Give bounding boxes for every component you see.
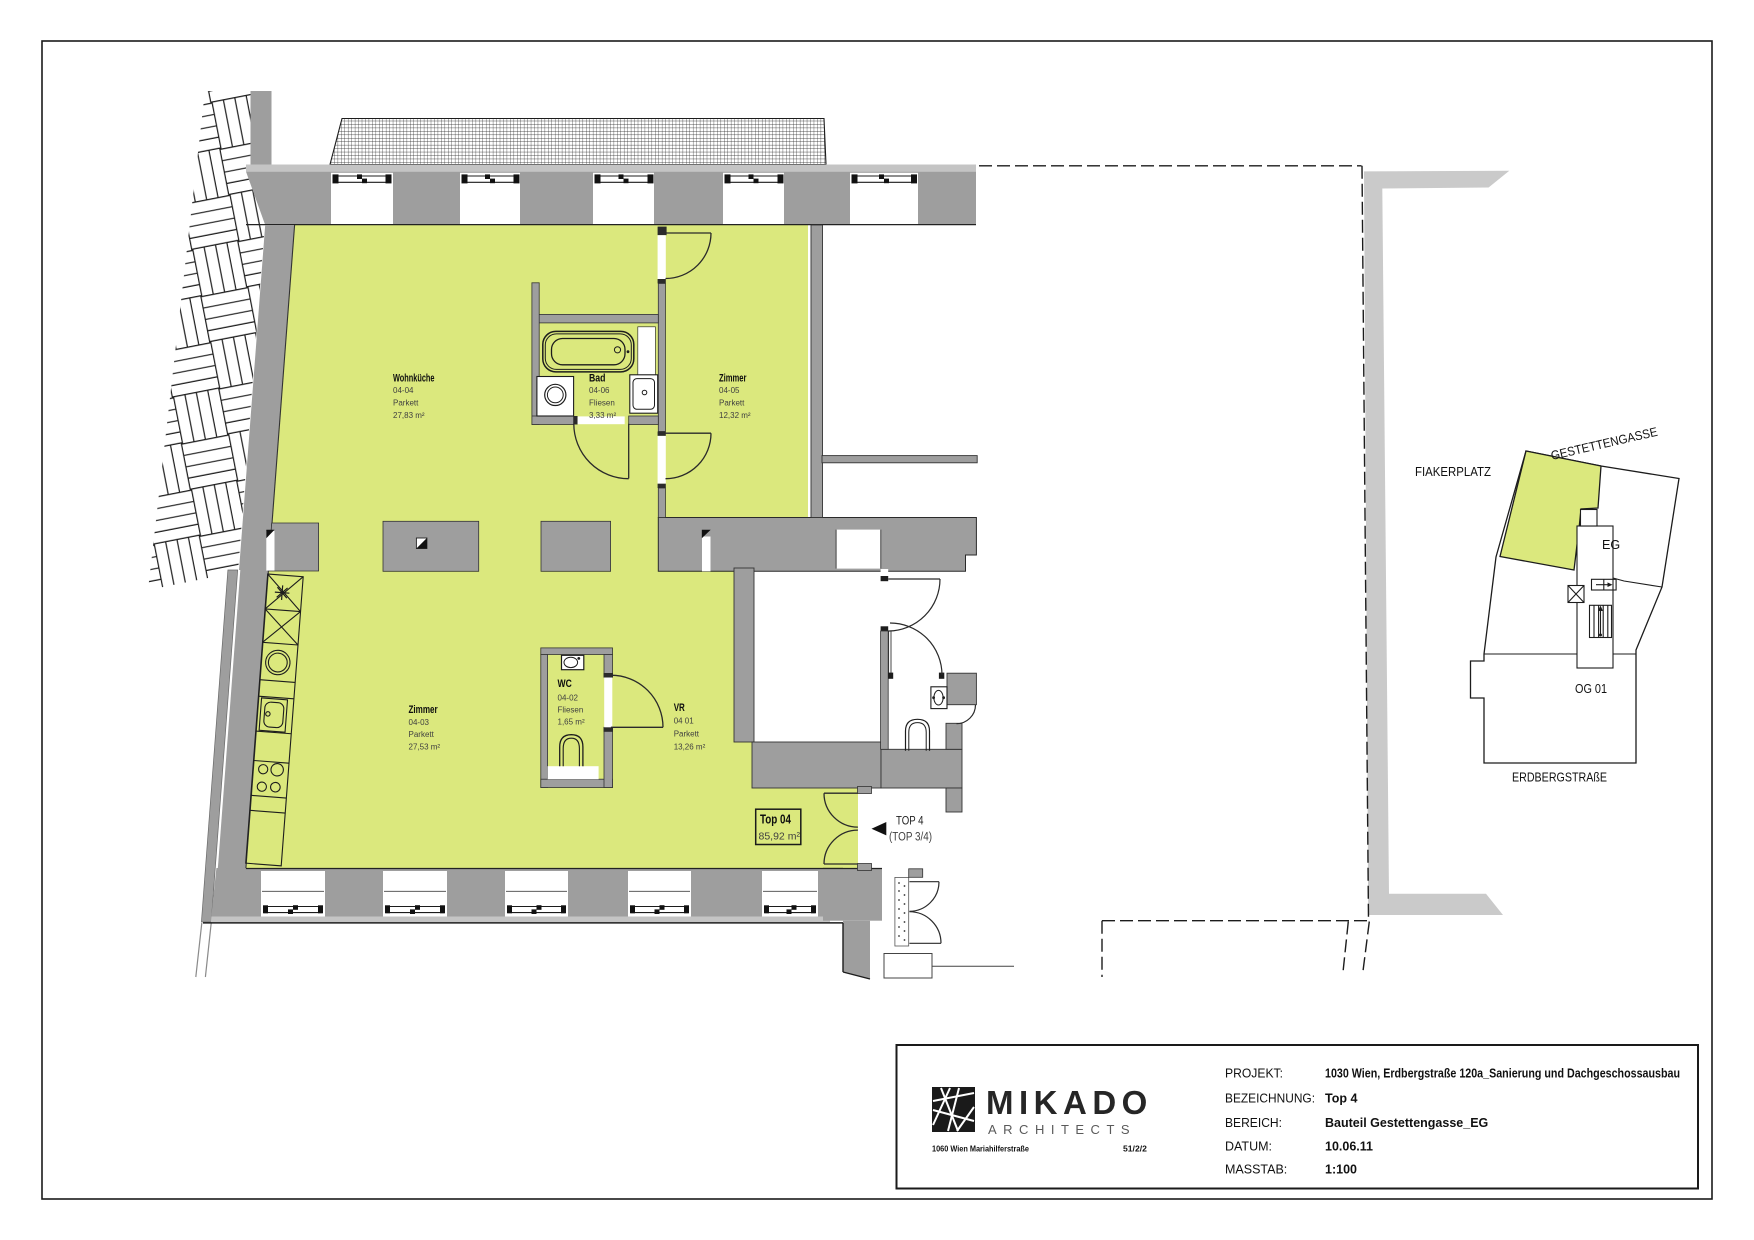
svg-text:04 01: 04 01 [674, 717, 695, 726]
svg-text:Parkett: Parkett [409, 730, 435, 739]
svg-text:04-02: 04-02 [558, 694, 579, 703]
svg-text:04-05: 04-05 [719, 386, 740, 395]
svg-text:12,32 m²: 12,32 m² [719, 411, 751, 420]
svg-text:10.06.11: 10.06.11 [1325, 1140, 1373, 1154]
svg-text:1030 Wien, Erdbergstraße 120a_: 1030 Wien, Erdbergstraße 120a_Sanierung … [1325, 1067, 1680, 1081]
svg-text:Parkett: Parkett [719, 399, 745, 408]
svg-text:EG: EG [1602, 538, 1620, 552]
svg-text:Fliesen: Fliesen [589, 399, 615, 408]
svg-text:Parkett: Parkett [674, 730, 700, 739]
svg-text:04-06: 04-06 [589, 386, 610, 395]
svg-text:Wohnküche: Wohnküche [393, 372, 435, 384]
svg-text:27,53 m²: 27,53 m² [409, 743, 441, 752]
svg-text:Top 04: Top 04 [760, 812, 792, 827]
svg-text:85,92 m²: 85,92 m² [759, 831, 801, 843]
svg-text:27,83 m²: 27,83 m² [393, 411, 425, 420]
svg-text:Bauteil Gestettengasse_EG: Bauteil Gestettengasse_EG [1325, 1116, 1488, 1130]
svg-text:BEREICH:: BEREICH: [1225, 1116, 1282, 1130]
svg-text:PROJEKT:: PROJEKT: [1225, 1067, 1283, 1081]
svg-text:MASSTAB:: MASSTAB: [1225, 1163, 1287, 1177]
svg-text:VR: VR [674, 702, 685, 714]
svg-text:BEZEICHNUNG:: BEZEICHNUNG: [1225, 1092, 1315, 1106]
svg-text:WC: WC [558, 678, 572, 690]
svg-text:MIKADO: MIKADO [986, 1084, 1153, 1121]
svg-text:GESTETTENGASSE: GESTETTENGASSE [1550, 425, 1659, 463]
svg-text:Parkett: Parkett [393, 399, 419, 408]
svg-text:1060 Wien Mariahilferstraße: 1060 Wien Mariahilferstraße [932, 1144, 1029, 1154]
svg-text:04-04: 04-04 [393, 386, 414, 395]
svg-text:DATUM:: DATUM: [1225, 1140, 1272, 1154]
svg-text:OG 01: OG 01 [1575, 682, 1607, 696]
svg-text:TOP 4: TOP 4 [896, 816, 924, 828]
svg-text:3,33 m²: 3,33 m² [589, 411, 616, 420]
svg-text:(TOP 3/4): (TOP 3/4) [889, 832, 932, 844]
svg-text:51/2/2: 51/2/2 [1123, 1144, 1147, 1154]
svg-text:ERDBERGSTRAßE: ERDBERGSTRAßE [1512, 771, 1607, 785]
svg-text:Fliesen: Fliesen [558, 706, 584, 715]
svg-text:Bad: Bad [589, 372, 606, 384]
svg-text:Top 4: Top 4 [1325, 1092, 1357, 1106]
svg-text:1:100: 1:100 [1325, 1163, 1357, 1177]
svg-text:1,65 m²: 1,65 m² [558, 718, 585, 727]
svg-text:04-03: 04-03 [409, 718, 430, 727]
svg-text:Zimmer: Zimmer [719, 372, 747, 384]
svg-text:Zimmer: Zimmer [409, 704, 439, 716]
svg-text:13,26 m²: 13,26 m² [674, 743, 706, 752]
svg-text:ARCHITECTS: ARCHITECTS [988, 1122, 1136, 1137]
svg-text:FIAKERPLATZ: FIAKERPLATZ [1415, 465, 1491, 479]
